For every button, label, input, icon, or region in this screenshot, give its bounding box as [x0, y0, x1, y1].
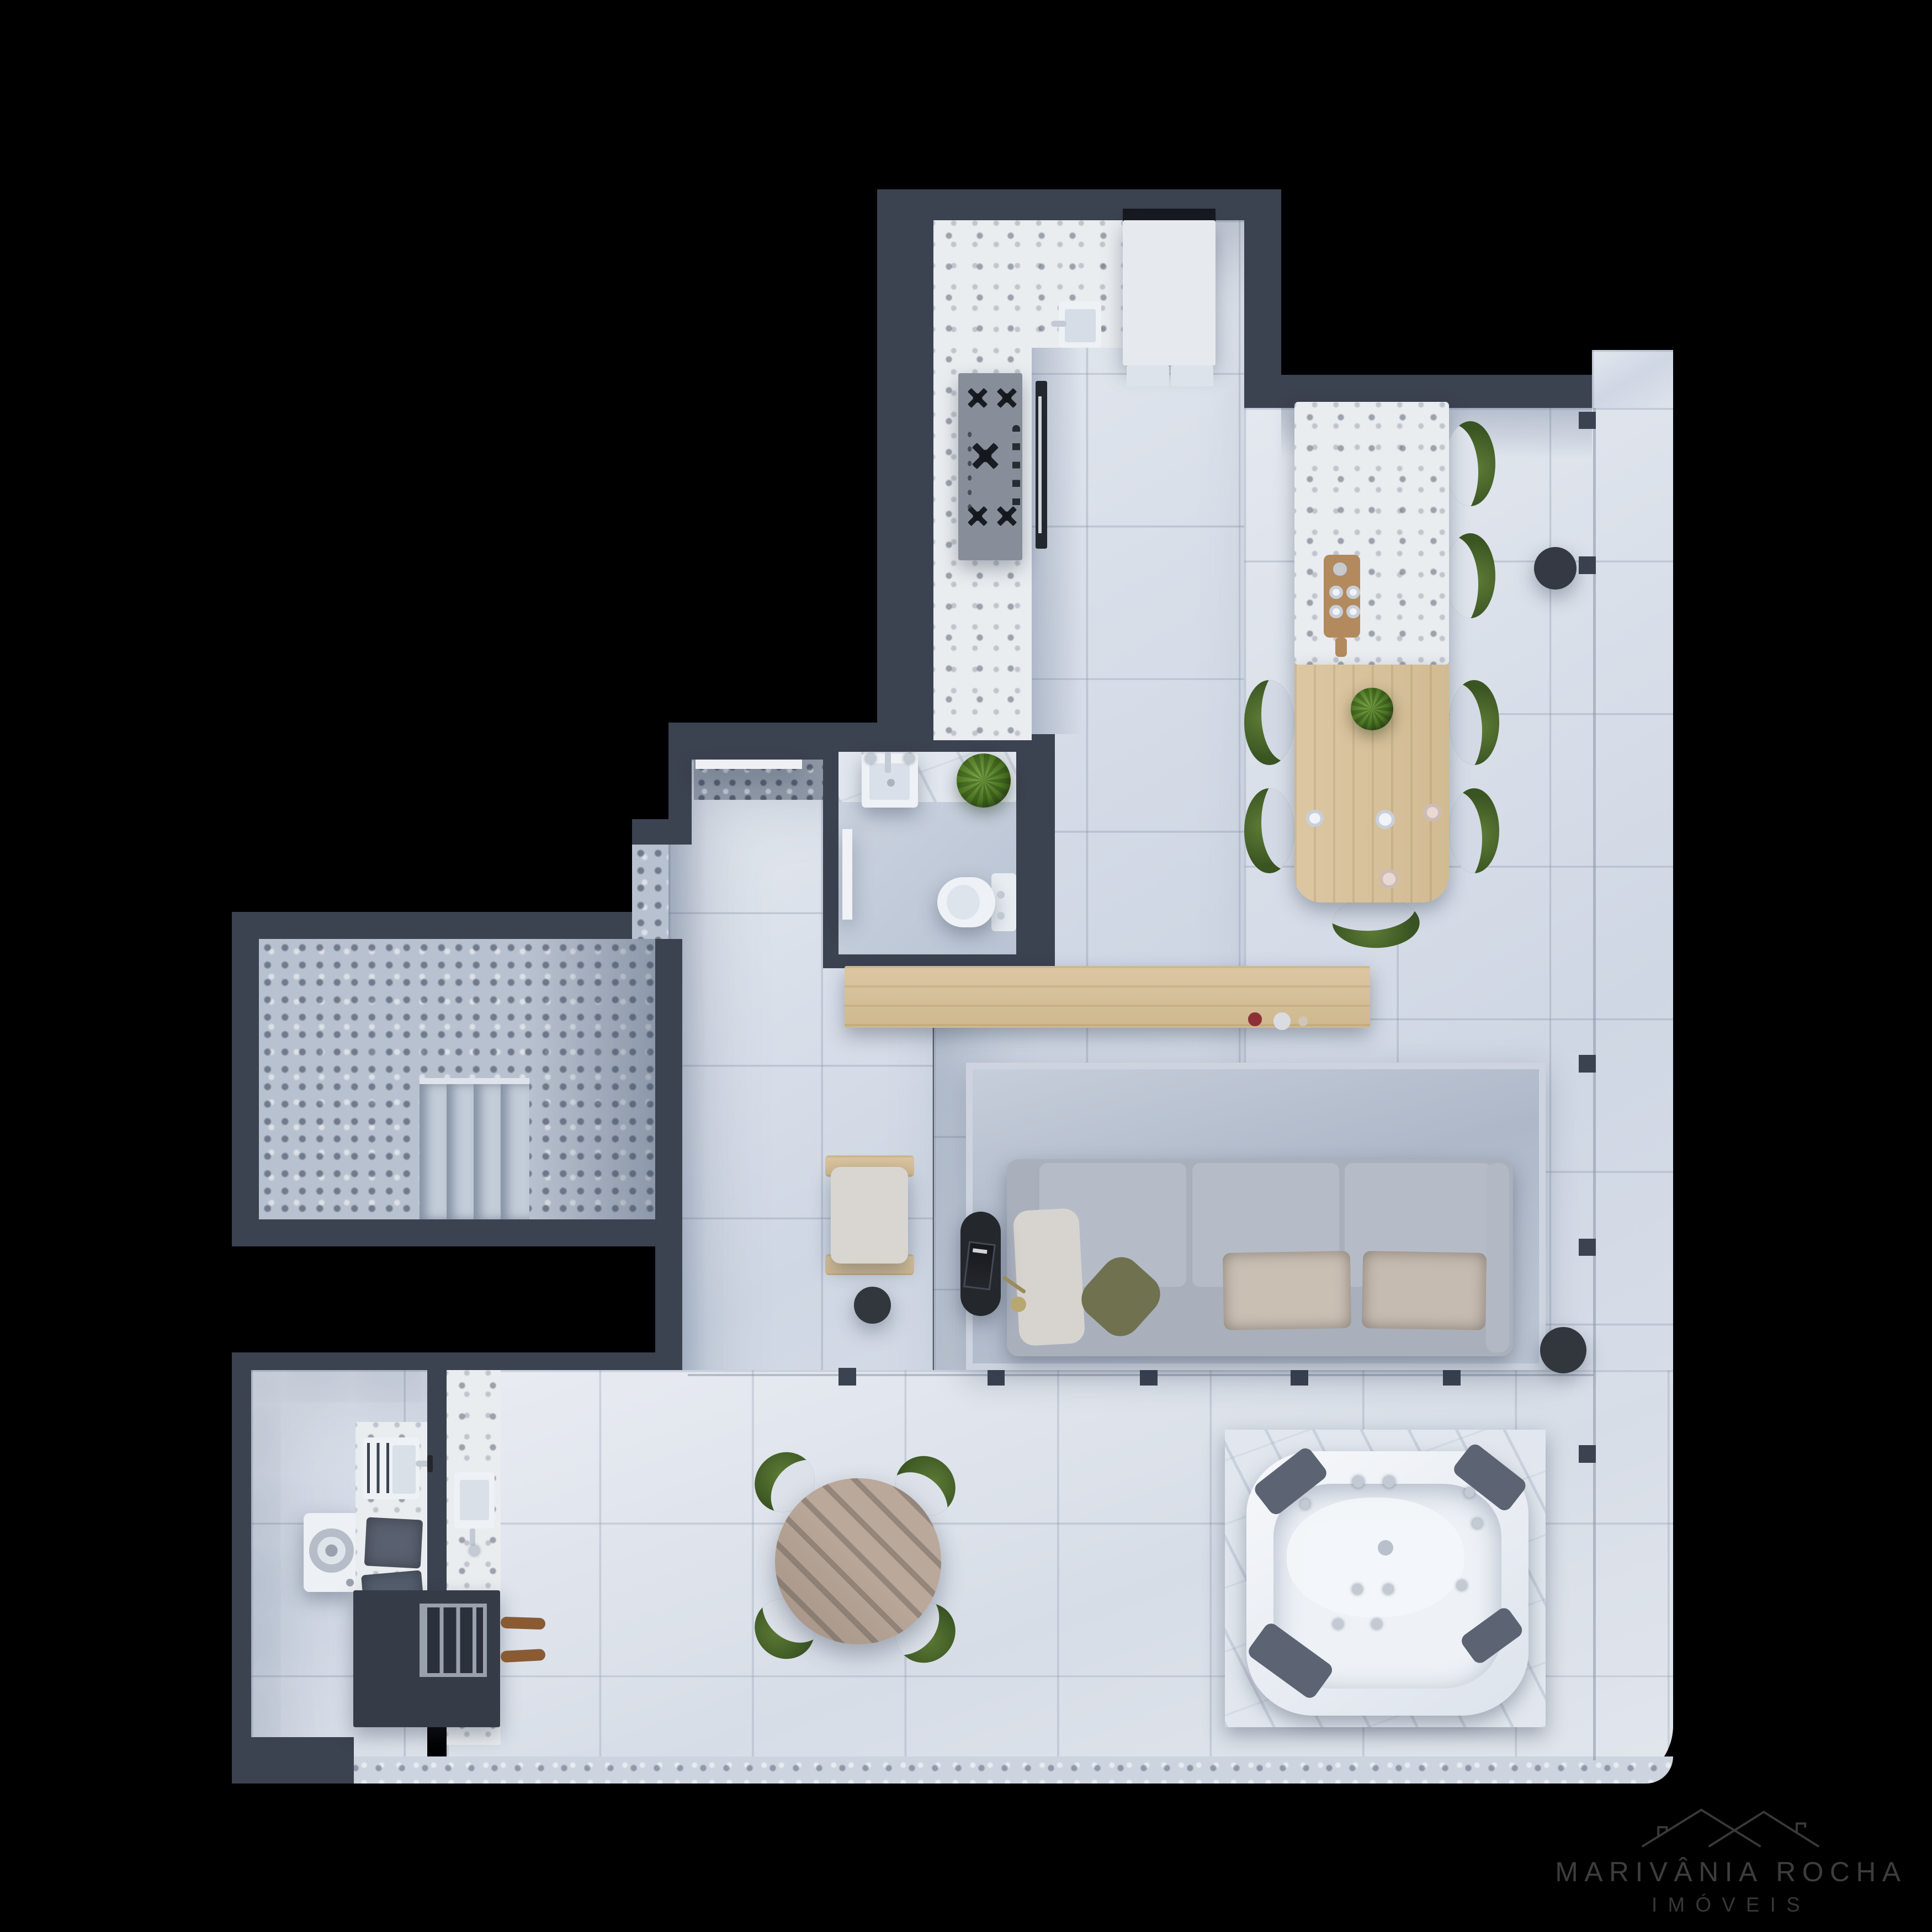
- kitchen-island: [1294, 402, 1449, 665]
- magazine: [963, 1241, 996, 1290]
- laundry-sink-basin: [392, 1445, 416, 1494]
- candle: [1298, 1016, 1308, 1026]
- island-stool: [1445, 533, 1495, 618]
- plate: [1424, 804, 1441, 821]
- jacuzzi-jet: [1352, 1584, 1362, 1594]
- jacuzzi-jet: [1301, 1499, 1310, 1509]
- dining-chair: [1449, 680, 1499, 765]
- jacuzzi-jet: [1372, 1619, 1382, 1629]
- faucet-handle: [866, 753, 875, 763]
- watermark-name: MARIVÂNIA ROCHA: [1555, 1856, 1907, 1888]
- wall-bath-left: [823, 734, 838, 954]
- window-post: [1579, 556, 1596, 574]
- glass-cup: [1333, 562, 1347, 576]
- side-table-round: [1534, 547, 1577, 590]
- washer-drum: [309, 1528, 354, 1573]
- burner: [966, 386, 989, 410]
- oven-edge: [1036, 381, 1047, 549]
- dining-chair: [1449, 788, 1499, 873]
- side-table-dark: [854, 1287, 891, 1324]
- toilet-button: [997, 912, 1005, 920]
- laundry-drying-rack: [367, 1443, 390, 1493]
- table-plant: [1351, 688, 1393, 730]
- viewport: MARIVÂNIA ROCHA IMÓVEIS: [0, 0, 1932, 1932]
- cup: [1329, 586, 1343, 599]
- bbq-sink-basin: [460, 1480, 489, 1520]
- wall-laundry-left: [232, 1352, 251, 1784]
- sofa-chaise-cushion: [1013, 1208, 1086, 1346]
- faucet-handle: [904, 753, 914, 763]
- armchair-cushion: [831, 1167, 908, 1264]
- teapot: [1376, 810, 1395, 829]
- wall-stairs-bottom: [232, 1219, 682, 1246]
- bathroom-door-leaf: [842, 829, 852, 920]
- cup: [1346, 586, 1360, 599]
- laundry-faucet-handle: [427, 1455, 433, 1473]
- wall-kitchen-right: [1244, 220, 1281, 408]
- floor-border-terrazzo: [251, 1756, 1673, 1784]
- wall-terrace-link: [655, 1246, 682, 1370]
- plate: [1306, 810, 1324, 827]
- wall-kitchen-top: [877, 189, 1281, 220]
- bathroom-drain: [887, 779, 895, 787]
- fridge-tray: [1171, 365, 1213, 387]
- bbq-faucet: [470, 1528, 476, 1546]
- window-post: [988, 1368, 1005, 1386]
- grill-handle: [500, 1649, 545, 1663]
- vase-gray: [1273, 1012, 1291, 1030]
- watermark-roofline-icon: [1639, 1800, 1823, 1852]
- stair-step: [501, 1084, 530, 1219]
- window-glass-right: [1593, 408, 1596, 1760]
- stair-step: [420, 1084, 447, 1219]
- island-stool: [1445, 421, 1495, 506]
- jacuzzi-jet: [1352, 1476, 1364, 1488]
- dining-chair: [1244, 680, 1294, 765]
- cup: [1346, 605, 1360, 619]
- jacuzzi-jet: [1333, 1619, 1343, 1629]
- floor-plan-stage: MARIVÂNIA ROCHA IMÓVEIS: [0, 0, 1932, 1932]
- wall-entry-stub: [632, 819, 692, 845]
- cooktop-dots: [964, 427, 976, 516]
- bathroom-faucet: [885, 752, 891, 773]
- entry-door-leaf: [696, 760, 802, 769]
- window-post: [838, 1368, 856, 1386]
- jacuzzi-seat: [1287, 1498, 1464, 1617]
- grill-handle: [500, 1616, 545, 1630]
- cooktop-knobs: [1012, 425, 1020, 514]
- watermark: MARIVÂNIA ROCHA IMÓVEIS: [1555, 1800, 1907, 1917]
- sofa-seat-pillow: [1222, 1251, 1351, 1330]
- wall-laundry-top: [232, 1352, 682, 1370]
- bbq-grill-grate: [420, 1604, 487, 1677]
- wall-stairs-left: [232, 912, 259, 1246]
- plate: [1379, 869, 1399, 889]
- bathroom-plant: [957, 753, 1011, 808]
- cutting-board-handle: [1335, 638, 1347, 657]
- window-post: [1579, 1055, 1596, 1073]
- wall-corner-bottom-left: [232, 1737, 354, 1784]
- stair-step: [447, 1084, 474, 1219]
- window-post: [1291, 1368, 1308, 1386]
- wall-stairs-top: [232, 912, 632, 939]
- watermark-subtitle: IMÓVEIS: [1555, 1893, 1907, 1917]
- jacuzzi-jet: [1383, 1584, 1393, 1594]
- jacuzzi-drain: [1378, 1540, 1393, 1556]
- fridge-tray: [1127, 365, 1169, 387]
- oven-edge-line: [1038, 396, 1041, 534]
- fridge: [1123, 220, 1216, 365]
- jacuzzi-jet: [1457, 1580, 1467, 1590]
- counter-mat: [364, 1517, 422, 1568]
- stair-edge: [420, 1078, 530, 1084]
- sideboard: [845, 966, 1370, 1028]
- vase-red: [1248, 1012, 1262, 1026]
- stair-step: [474, 1084, 501, 1219]
- jacuzzi-jet: [1472, 1519, 1482, 1528]
- washer-knob: [346, 1579, 354, 1586]
- bbq-faucet-handle: [470, 1546, 480, 1556]
- burner: [995, 386, 1018, 410]
- window-post: [1579, 412, 1596, 429]
- jacuzzi-jet: [1464, 1488, 1474, 1498]
- floor-balcony-sliver: [1592, 350, 1673, 408]
- wall-stairs-right: [655, 939, 682, 1219]
- sofa-arm-right: [1486, 1163, 1509, 1352]
- floor-stair-notch: [632, 845, 669, 940]
- toilet-seat: [947, 885, 980, 920]
- window-post: [1579, 1239, 1596, 1256]
- side-table-dark: [1540, 1327, 1586, 1373]
- wall-kitchen-left: [877, 189, 933, 765]
- window-post: [1443, 1368, 1461, 1386]
- jacuzzi-jet: [1383, 1476, 1395, 1488]
- window-post: [1579, 1445, 1596, 1463]
- kitchen-sink-basin: [1065, 309, 1096, 342]
- wall-bath-right: [1016, 752, 1055, 955]
- cup: [1329, 605, 1343, 619]
- floor-lamp-head: [1011, 1297, 1026, 1312]
- kitchen-faucet: [1051, 321, 1066, 327]
- window-post: [1140, 1368, 1158, 1386]
- dining-chair: [1244, 788, 1294, 873]
- sofa-seat-pillow: [1361, 1251, 1486, 1330]
- toilet-button: [997, 891, 1005, 899]
- dining-chair: [1332, 898, 1419, 948]
- wall-laundry-right: [427, 1370, 447, 1590]
- terrace-round-table: [775, 1478, 941, 1644]
